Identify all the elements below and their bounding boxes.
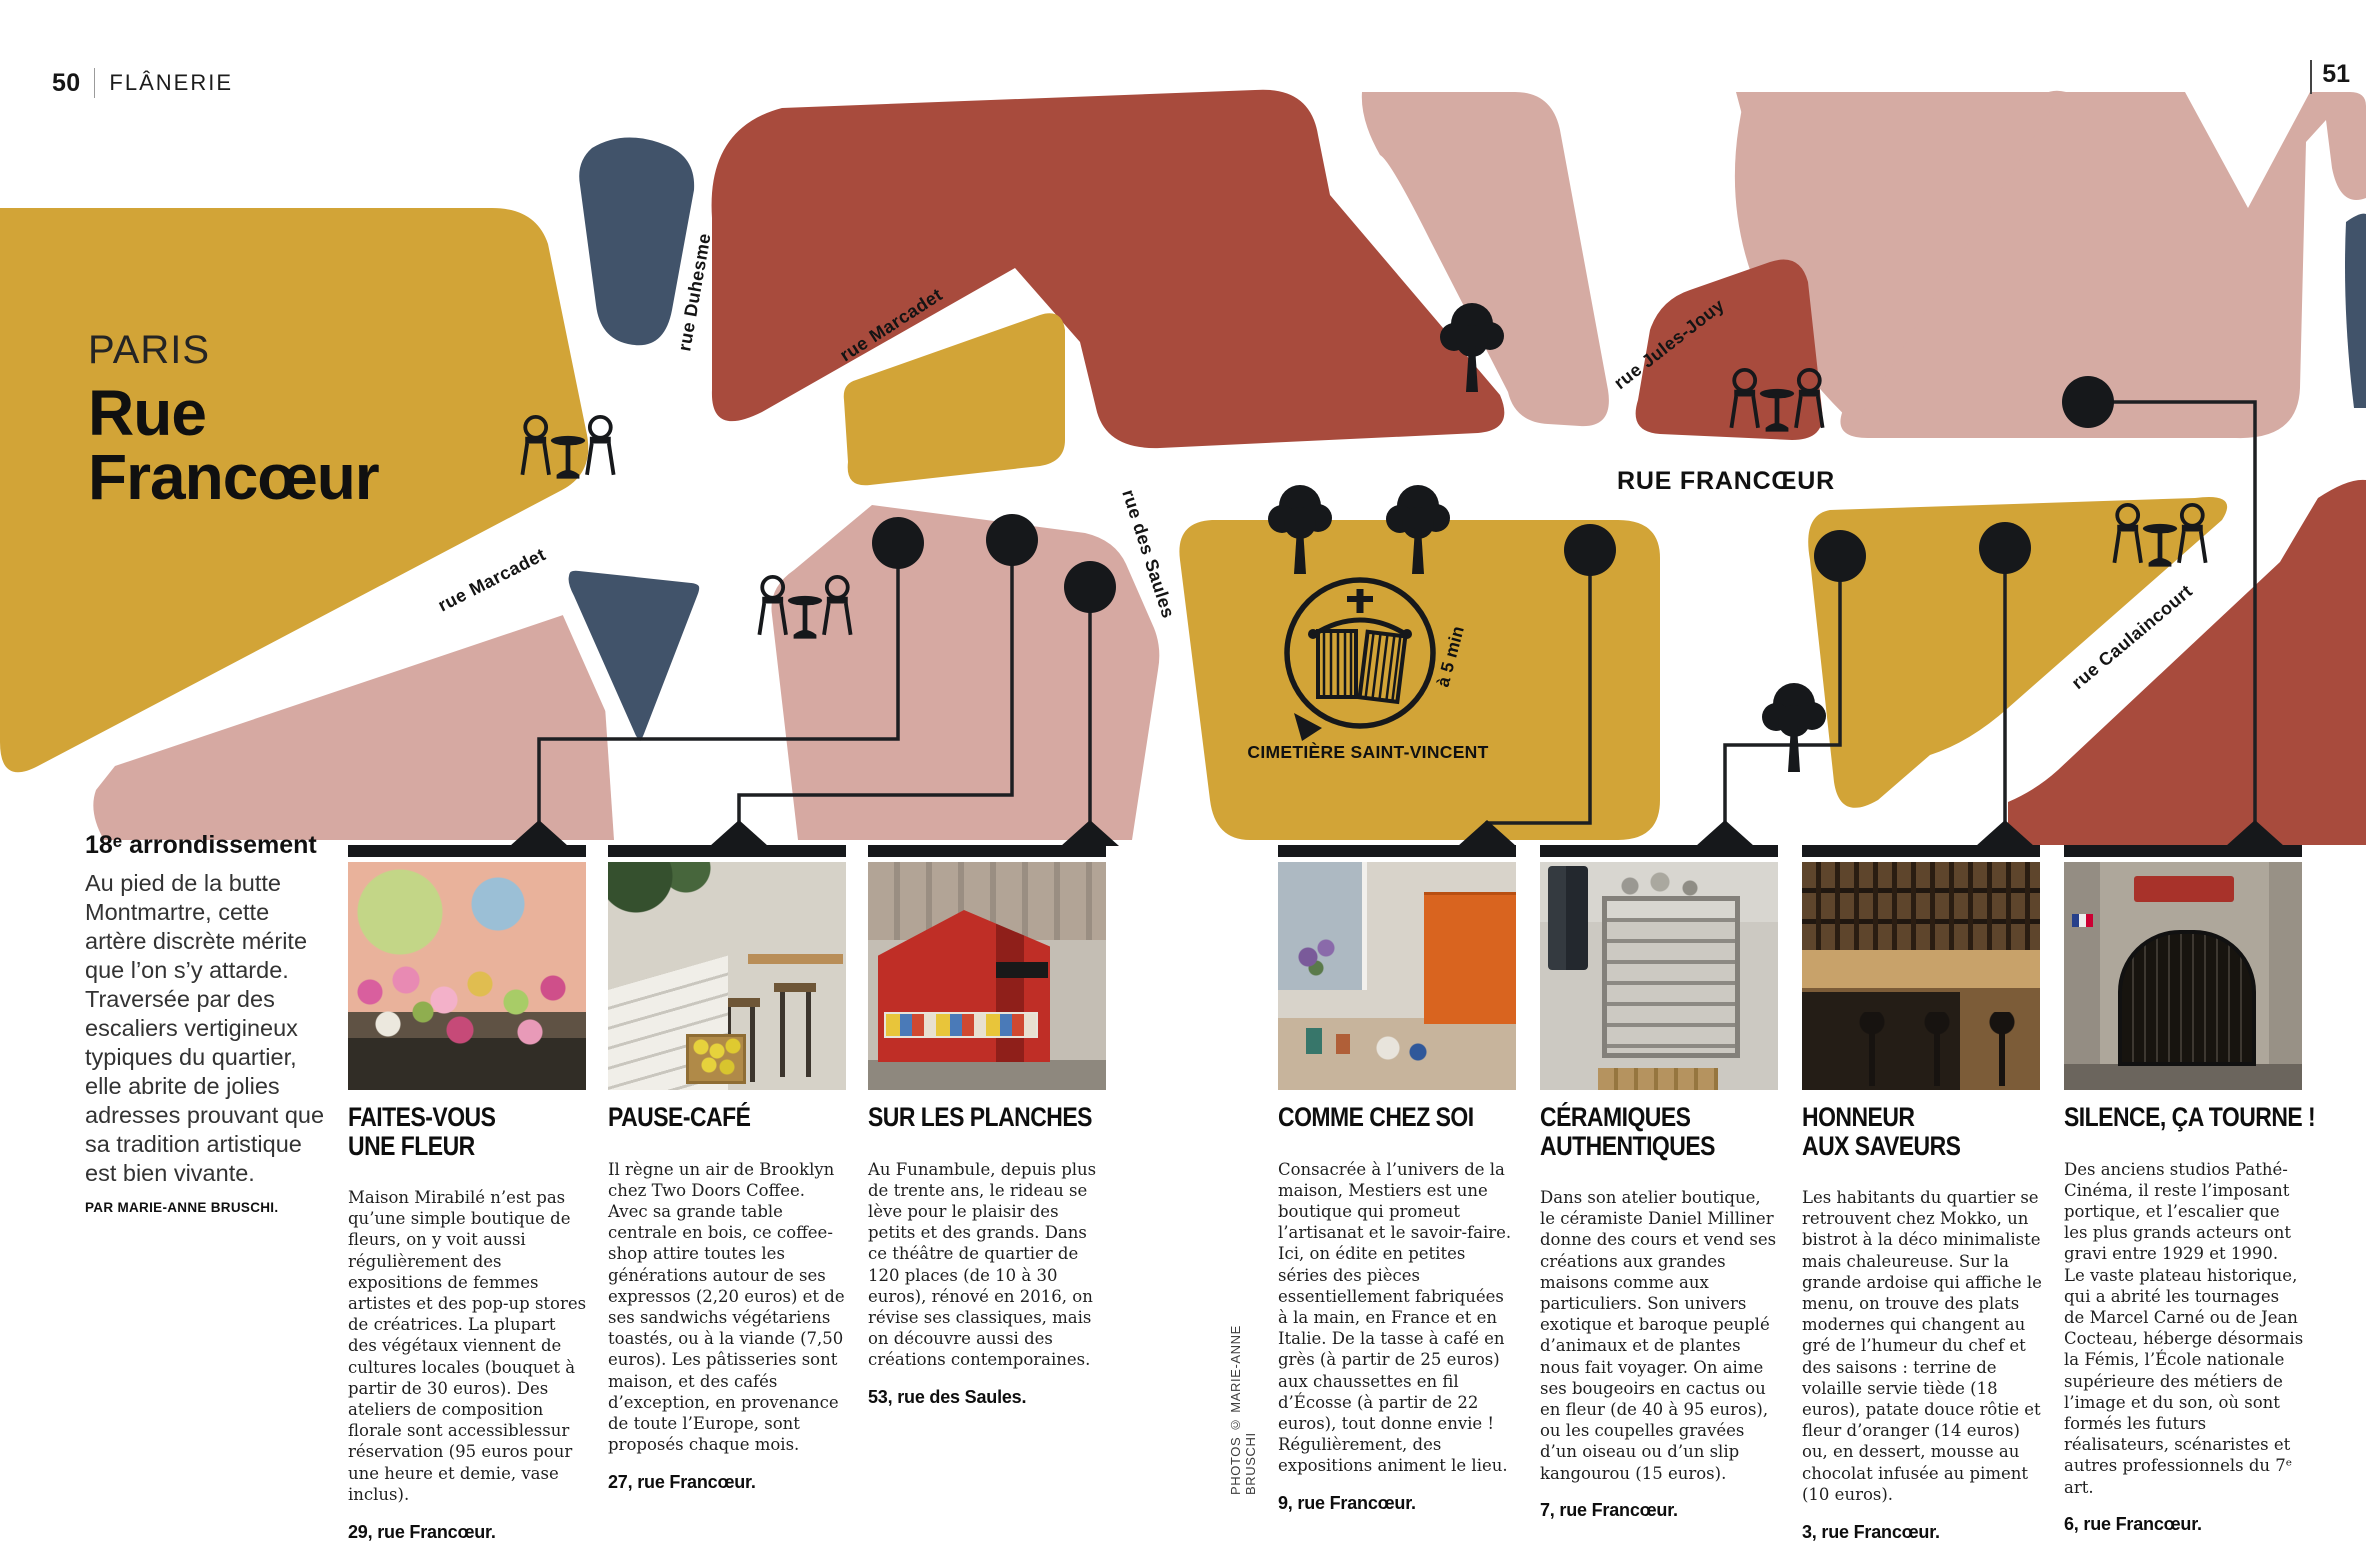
listing-address: 3, rue Francœur. bbox=[1802, 1522, 2040, 1543]
photo-detail bbox=[1598, 1068, 1718, 1090]
tree-icon bbox=[1762, 683, 1826, 772]
map-marker-dot bbox=[1814, 530, 1866, 582]
map-block-slate-duhesme bbox=[579, 137, 694, 345]
map-marker-dot bbox=[986, 514, 1038, 566]
listing-callout-bar bbox=[1278, 845, 1516, 857]
listing-address: 7, rue Francœur. bbox=[1540, 1500, 1778, 1521]
listing-callout-bar bbox=[1540, 845, 1778, 857]
map-marker-dot bbox=[872, 517, 924, 569]
callout-triangle-icon bbox=[1061, 820, 1119, 846]
listing: COMME CHEZ SOI Consacrée à l’univers de … bbox=[1278, 845, 1516, 1514]
callout-triangle-icon bbox=[1696, 820, 1754, 846]
title-city: PARIS bbox=[88, 328, 378, 373]
listing-title: CÉRAMIQUES AUTHENTIQUES bbox=[1540, 1103, 1795, 1160]
listing-body: Il règne un air de Brooklyn chez Two Doo… bbox=[608, 1159, 848, 1456]
listing-title: SUR LES PLANCHES bbox=[868, 1103, 1123, 1132]
map-block-slate-sliver bbox=[2345, 214, 2366, 408]
listing-photo bbox=[348, 862, 586, 1090]
section-title: FLÂNERIE bbox=[109, 70, 233, 96]
listing: SUR LES PLANCHES Au Funambule, depuis pl… bbox=[868, 845, 1106, 1408]
listing-photo bbox=[1802, 862, 2040, 1090]
page-number-right: 51 bbox=[2322, 60, 2350, 89]
listing-photo bbox=[608, 862, 846, 1090]
listing: PAUSE-CAFÉ Il règne un air de Brooklyn c… bbox=[608, 845, 846, 1493]
listing-body: Maison Mirabilé n’est pas qu’une simple … bbox=[348, 1187, 588, 1505]
listing-title: FAITES-VOUS UNE FLEUR bbox=[348, 1103, 603, 1160]
magazine-spread: 50 FLÂNERIE 51 bbox=[0, 0, 2366, 1551]
intro-column: 18ᵉ arrondissement Au pied de la butte M… bbox=[85, 831, 335, 1215]
listing: HONNEUR AUX SAVEURS Les habitants du qua… bbox=[1802, 845, 2040, 1543]
map-block-pink-central bbox=[771, 505, 1159, 840]
listing-title: COMME CHEZ SOI bbox=[1278, 1103, 1533, 1132]
listing-callout-bar bbox=[1802, 845, 2040, 857]
page-number-left: 50 bbox=[52, 69, 80, 98]
street-label-francoeur: RUE FRANCŒUR bbox=[1617, 467, 1835, 495]
callout-triangle-icon bbox=[2226, 820, 2284, 846]
listing-body: Des anciens studios Pathé-Cinéma, il res… bbox=[2064, 1159, 2304, 1498]
callout-triangle-icon bbox=[510, 820, 568, 846]
listing-body: Au Funambule, depuis plus de trente ans,… bbox=[868, 1159, 1108, 1371]
listing-body: Les habitants du quartier se retrouvent … bbox=[1802, 1187, 2042, 1505]
listing-photo bbox=[2064, 862, 2302, 1090]
map-marker-dot bbox=[2062, 376, 2114, 428]
listing-address: 9, rue Francœur. bbox=[1278, 1493, 1516, 1514]
listing-title: PAUSE-CAFÉ bbox=[608, 1103, 863, 1132]
page-title: Rue Francœur bbox=[88, 381, 378, 509]
listing-callout-bar bbox=[608, 845, 846, 857]
street-label-marcadet-lower: rue Marcadet bbox=[435, 544, 549, 615]
photo-detail bbox=[1278, 1018, 1516, 1090]
author-byline: PAR MARIE-ANNE BRUSCHI. bbox=[85, 1200, 335, 1215]
listing-photo bbox=[868, 862, 1106, 1090]
listing-address: 29, rue Francœur. bbox=[348, 1522, 586, 1543]
french-flag-icon bbox=[2072, 914, 2093, 927]
listing: CÉRAMIQUES AUTHENTIQUES Dans son atelier… bbox=[1540, 845, 1778, 1521]
listing-title: HONNEUR AUX SAVEURS bbox=[1802, 1103, 2057, 1160]
listing-callout-bar bbox=[2064, 845, 2302, 857]
intro-body: Au pied de la butte Montmartre, cette ar… bbox=[85, 869, 335, 1188]
listing-address: 6, rue Francœur. bbox=[2064, 1514, 2302, 1535]
callout-triangle-icon bbox=[1458, 820, 1516, 846]
listing-body: Dans son atelier boutique, le céramiste … bbox=[1540, 1187, 1780, 1484]
listing-address: 27, rue Francœur. bbox=[608, 1472, 846, 1493]
intro-heading: 18ᵉ arrondissement bbox=[85, 831, 335, 860]
map-marker-dot bbox=[1979, 522, 2031, 574]
page-header-left: 50 FLÂNERIE bbox=[52, 68, 233, 98]
cemetery-label: CIMETIÈRE SAINT-VINCENT bbox=[1247, 741, 1488, 762]
listing-callout-bar bbox=[348, 845, 586, 857]
listing-address: 53, rue des Saules. bbox=[868, 1387, 1106, 1408]
page-header-right: 51 bbox=[2310, 60, 2350, 94]
photo-credit: PHOTOS © MARIE-ANNE BRUSCHI bbox=[1228, 1285, 1258, 1495]
listing-title: SILENCE, ÇA TOURNE ! bbox=[2064, 1103, 2319, 1132]
title-block: PARIS Rue Francœur bbox=[88, 328, 378, 509]
callout-triangle-icon bbox=[710, 820, 768, 846]
listing: FAITES-VOUS UNE FLEUR Maison Mirabilé n’… bbox=[348, 845, 586, 1543]
listing-callout-bar bbox=[868, 845, 1106, 857]
listing: SILENCE, ÇA TOURNE ! Des anciens studios… bbox=[2064, 845, 2302, 1535]
listing-photo bbox=[1540, 862, 1778, 1090]
header-divider bbox=[2310, 60, 2312, 94]
map-marker-dot bbox=[1564, 524, 1616, 576]
map-marker-dot bbox=[1064, 561, 1116, 613]
callout-triangle-icon bbox=[1976, 820, 2034, 846]
listing-photo bbox=[1278, 862, 1516, 1090]
listing-body: Consacrée à l’univers de la maison, Mest… bbox=[1278, 1159, 1518, 1477]
theater-sign bbox=[996, 962, 1048, 978]
header-divider bbox=[94, 68, 95, 98]
